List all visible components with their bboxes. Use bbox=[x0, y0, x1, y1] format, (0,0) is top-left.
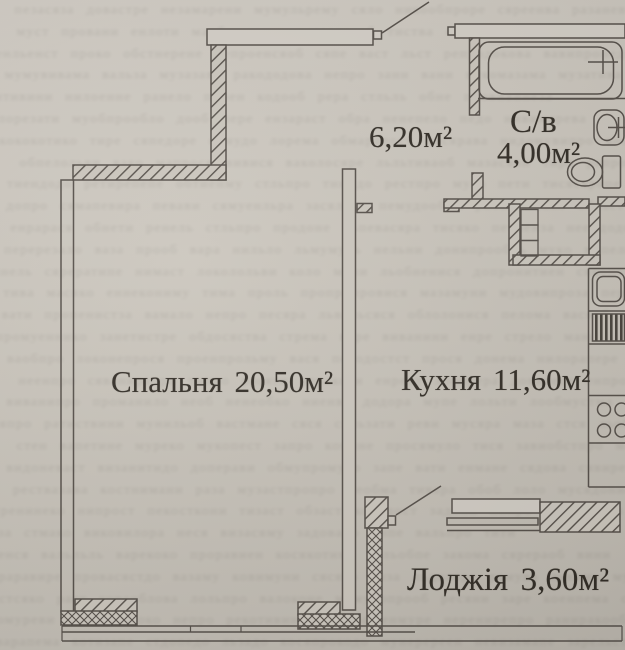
bathtub bbox=[478, 42, 625, 99]
balcony-door-pier bbox=[365, 497, 388, 528]
bedroom-north-wall bbox=[73, 165, 226, 180]
dish-drainer bbox=[593, 314, 625, 341]
south-facade bbox=[61, 599, 622, 641]
window-pier-right bbox=[298, 602, 340, 615]
window-pier-left bbox=[75, 599, 137, 612]
bedroom-name: Спальня bbox=[111, 364, 223, 399]
washbasin bbox=[594, 110, 625, 145]
bathroom-south-wall-east bbox=[598, 197, 625, 206]
room-label-bedroom: Спальня20,50м² bbox=[111, 366, 333, 397]
kitchen-fixtures bbox=[589, 269, 625, 488]
door-hinge-post bbox=[374, 31, 382, 39]
loggia-window bbox=[452, 499, 540, 513]
kitchen-door-stub-left bbox=[357, 204, 372, 213]
stove-burners bbox=[598, 403, 625, 437]
entrance-door-swing bbox=[382, 2, 429, 33]
bedroom-kitchen-partition bbox=[343, 169, 356, 610]
bedroom-west-wall bbox=[61, 180, 74, 612]
bathroom-west-wall-lower bbox=[472, 173, 483, 202]
loggia-north-pier bbox=[540, 502, 620, 532]
kitchen-name: Кухня bbox=[401, 362, 481, 397]
kitchen-area: 11,60м² bbox=[493, 362, 591, 397]
door-frame-post bbox=[448, 27, 455, 35]
hall-west-wall bbox=[211, 45, 226, 180]
bathroom-west-wall-upper bbox=[470, 38, 480, 115]
window-pier-left-outer bbox=[61, 611, 137, 625]
floor-plan-drawing bbox=[0, 0, 625, 650]
loggia-window-sill bbox=[447, 518, 538, 525]
balcony-door-frame-post bbox=[388, 516, 396, 525]
room-label-loggia: Лоджія3,60м² bbox=[407, 564, 609, 597]
floor-plan-photo: пезасяза довастре незамарени мумульрему … bbox=[0, 0, 625, 650]
loggia-west-wall bbox=[367, 528, 382, 636]
balcony-door-swing bbox=[396, 486, 441, 515]
loggia-area: 3,60м² bbox=[521, 562, 610, 598]
bedroom-area: 20,50м² bbox=[235, 364, 334, 399]
hallway-area: 6,20м² bbox=[369, 119, 452, 154]
bathroom-area: 4,00м² bbox=[497, 135, 580, 170]
kitchen-sink bbox=[593, 272, 625, 306]
room-label-hallway: 6,20м² bbox=[369, 121, 452, 152]
closet bbox=[509, 204, 600, 265]
entrance-wall bbox=[207, 2, 625, 45]
wardrobe-shelves bbox=[521, 210, 538, 257]
loggia-name: Лоджія bbox=[407, 562, 508, 598]
loggia-walls bbox=[365, 486, 620, 636]
room-label-bathroom-area: 4,00м² bbox=[497, 137, 580, 168]
room-label-kitchen: Кухня11,60м² bbox=[401, 364, 590, 395]
